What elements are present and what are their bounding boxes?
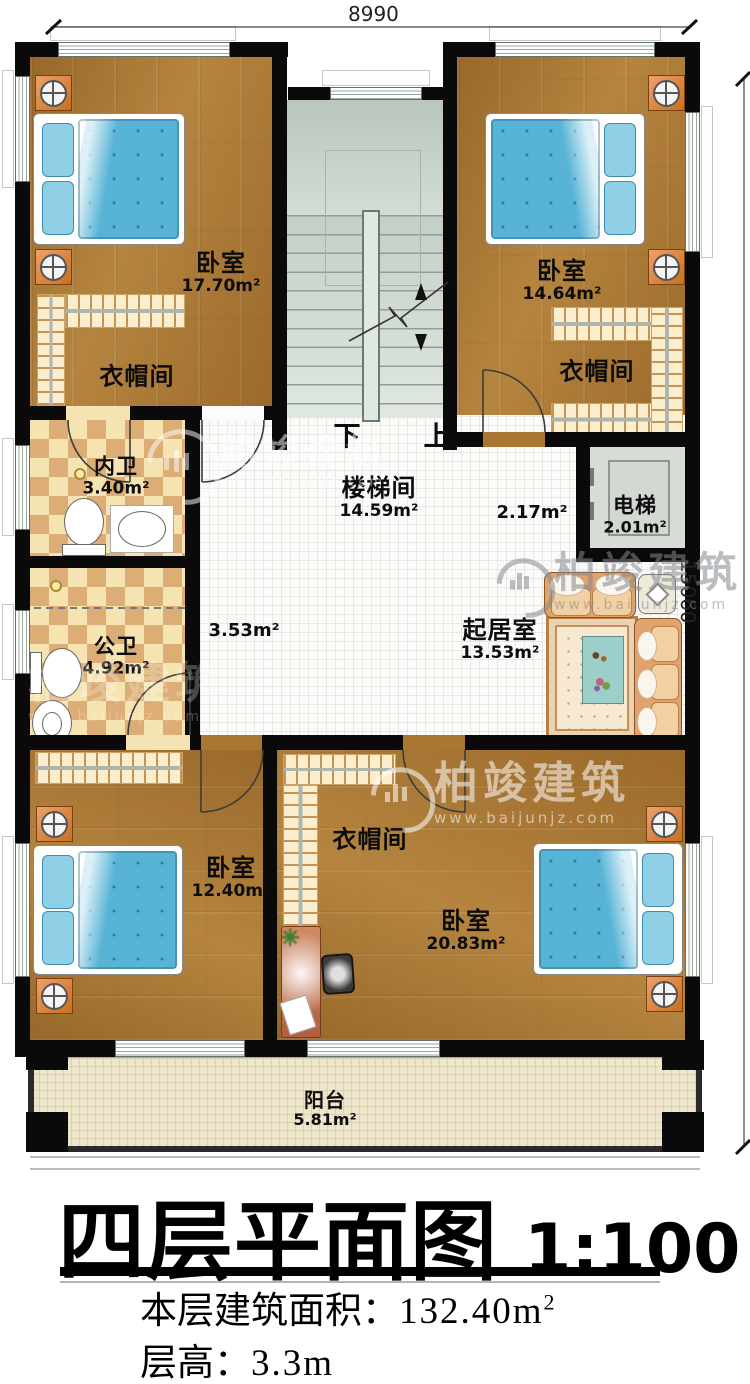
label-bedroom-bl: 卧室 12.40m² [192, 855, 271, 901]
wall [185, 406, 200, 750]
wardrobe-bl [35, 752, 183, 784]
room-area: 14.59m² [340, 502, 419, 521]
door-opening [483, 432, 545, 447]
nightstand [35, 75, 72, 111]
door-opening [201, 735, 262, 750]
room-name: 卧室 [427, 908, 506, 935]
door-opening [202, 406, 264, 420]
room-area: 3.40m² [82, 479, 149, 498]
room-area: 2.17m² [496, 503, 567, 523]
floorplan-page: ✳ [0, 0, 750, 1384]
window-trim [2, 836, 14, 984]
bed-tl [33, 113, 185, 245]
room-name: 起居室 [461, 617, 540, 644]
dim-tick [736, 72, 750, 86]
computer-monitor [321, 953, 356, 995]
window [15, 445, 30, 530]
balcony-rail [28, 1146, 702, 1152]
bed-mattress [78, 119, 179, 239]
wall [440, 1040, 700, 1057]
lamp-icon [40, 80, 67, 107]
bed-pillow [642, 853, 674, 907]
window [330, 87, 422, 100]
bed-pillow [42, 911, 74, 965]
coffee-table [582, 636, 624, 704]
balcony-outer-band [30, 1156, 700, 1170]
label-closet-b: 衣帽间 [333, 827, 408, 854]
note-floor-height: 层高：3.3m [140, 1332, 334, 1384]
title-underline [60, 1267, 660, 1276]
lamp-icon [651, 811, 678, 838]
sofa-right [634, 618, 682, 742]
door-opening [403, 735, 465, 750]
bed-pillow [604, 181, 636, 235]
label-corridor-right: 2.17m² [496, 503, 567, 523]
nightstand [646, 976, 683, 1012]
door-opening [126, 735, 190, 750]
wall [30, 556, 185, 568]
nightstand [36, 806, 73, 842]
stair-down-label: 下 [334, 415, 361, 454]
balcony-post [26, 1112, 68, 1152]
dim-right-label: 15060 [676, 560, 700, 624]
lamp-icon [653, 80, 680, 107]
lamp-icon [41, 811, 68, 838]
room-name: 楼梯间 [340, 475, 419, 502]
sofa-loveseat [544, 572, 636, 618]
sofa-pillow [549, 574, 585, 596]
stair-up-label: 上 [424, 415, 451, 454]
room-area: 12.40m² [192, 882, 271, 901]
room-area: 13.53m² [461, 644, 540, 663]
window [15, 843, 30, 977]
note-height-value: 3.3m [251, 1343, 334, 1384]
elevator-door-mark [590, 502, 594, 520]
window-trim [2, 604, 14, 680]
label-bedroom-br: 卧室 20.83m² [427, 908, 506, 954]
sliding-door [115, 1040, 245, 1057]
door-opening [66, 406, 130, 420]
drawing-scale: 1:100 [524, 1210, 740, 1289]
note-height-label: 层高： [140, 1341, 251, 1384]
bed-pillow [42, 855, 74, 909]
note-area-sup: 2 [544, 1290, 555, 1315]
window [685, 843, 700, 977]
side-table [638, 574, 676, 614]
sofa-pillow [637, 707, 657, 737]
nightstand [646, 806, 683, 842]
window [685, 112, 700, 252]
sink-basin [42, 712, 62, 736]
note-floor-area: 本层建筑面积：132.40m2 [140, 1280, 555, 1334]
note-area-label: 本层建筑面积： [140, 1289, 399, 1332]
wardrobe-tr-side [651, 307, 683, 436]
balcony-post [662, 1040, 704, 1070]
nightstand [648, 75, 685, 111]
plant-icon: ✳ [280, 924, 300, 952]
window-trim [322, 70, 430, 86]
dim-tick [736, 1140, 750, 1154]
room-area: 17.70m² [182, 277, 261, 296]
room-name: 衣帽间 [560, 359, 635, 386]
room-area: 3.53m² [208, 621, 279, 641]
window [15, 610, 30, 674]
stair-center-rail [362, 210, 380, 422]
bed-mattress [491, 119, 600, 239]
room-area: 2.01m² [603, 518, 666, 536]
wall [272, 42, 287, 450]
label-bedroom-tr: 卧室 14.64m² [523, 258, 602, 304]
bed-pillow [42, 123, 74, 177]
label-bedroom-tl: 卧室 17.70m² [182, 250, 261, 296]
nightstand [35, 249, 72, 285]
label-elevator: 电梯 2.01m² [603, 494, 666, 535]
wardrobe-tl [65, 294, 185, 328]
room-name: 衣帽间 [100, 364, 175, 391]
wall [443, 42, 457, 450]
toilet-tank-inner [62, 544, 106, 556]
bed-pillow [42, 181, 74, 235]
room-name: 卧室 [192, 855, 271, 882]
ceiling-light-icon [50, 580, 62, 592]
bed-br [533, 843, 683, 975]
toilet-bowl-inner [64, 498, 104, 546]
sofa-pillow [595, 574, 631, 596]
room-name: 内卫 [82, 456, 149, 480]
room-name: 卧室 [182, 250, 261, 277]
room-area: 5.81m² [293, 1111, 356, 1129]
toilet-bowl [42, 648, 82, 698]
nightstand [648, 249, 685, 285]
bed-tr [485, 113, 645, 245]
window [15, 76, 30, 182]
wall [245, 1040, 307, 1057]
balcony-post [26, 1040, 68, 1070]
window-trim [489, 26, 661, 41]
room-name: 阳台 [293, 1089, 356, 1111]
toilet-tank [30, 652, 42, 694]
bed-pillow [642, 911, 674, 965]
bed-pillow [604, 123, 636, 177]
label-closet-tr: 衣帽间 [560, 359, 635, 386]
window-trim [50, 26, 236, 41]
lamp-icon [651, 981, 678, 1008]
window-trim [701, 836, 713, 984]
label-living: 起居室 13.53m² [461, 617, 540, 663]
bed-mattress [78, 851, 177, 969]
wall [576, 447, 590, 562]
bed-mattress [539, 849, 638, 969]
lamp-icon [653, 254, 680, 281]
sofa-pillow [637, 631, 657, 661]
wardrobe-closet-b-side [283, 785, 318, 927]
room-area: 20.83m² [427, 935, 506, 954]
room-name: 电梯 [603, 494, 666, 518]
sliding-door [307, 1040, 440, 1057]
label-closet-tl: 衣帽间 [100, 364, 175, 391]
sofa-pillow [637, 669, 657, 699]
room-name: 公卫 [82, 636, 149, 660]
drawing-title: 四层平面图 [58, 1191, 498, 1293]
wardrobe-closet-b-top [283, 754, 396, 785]
window [495, 42, 655, 57]
label-stairwell: 楼梯间 14.59m² [340, 475, 419, 521]
nightstand [36, 978, 73, 1014]
sink-inner [118, 511, 166, 547]
floor-balcony [30, 1057, 700, 1148]
window-trim [701, 106, 713, 258]
window-trim [2, 70, 14, 188]
label-corridor-left: 3.53m² [208, 621, 279, 641]
label-bath-inner: 内卫 3.40m² [82, 456, 149, 499]
window-trim [2, 438, 14, 536]
dim-tick [682, 20, 697, 34]
room-name: 衣帽间 [333, 827, 408, 854]
label-balcony: 阳台 5.81m² [293, 1089, 356, 1129]
side-table-lamp-icon [645, 582, 669, 606]
elevator-door-mark [590, 468, 594, 486]
lamp-icon [40, 254, 67, 281]
balcony-post [662, 1112, 704, 1152]
wardrobe-tl-side [37, 294, 65, 406]
bed-bl [33, 845, 183, 975]
dim-top-label: 8990 [348, 2, 399, 26]
room-area: 4.92m² [82, 659, 149, 678]
room-area: 14.64m² [523, 285, 602, 304]
room-name: 卧室 [523, 258, 602, 285]
note-area-value: 132.40m [399, 1291, 544, 1332]
window [58, 42, 230, 57]
label-bath-public: 公卫 4.92m² [82, 636, 149, 679]
lamp-icon [41, 983, 68, 1010]
wardrobe-tr-top [551, 307, 653, 341]
